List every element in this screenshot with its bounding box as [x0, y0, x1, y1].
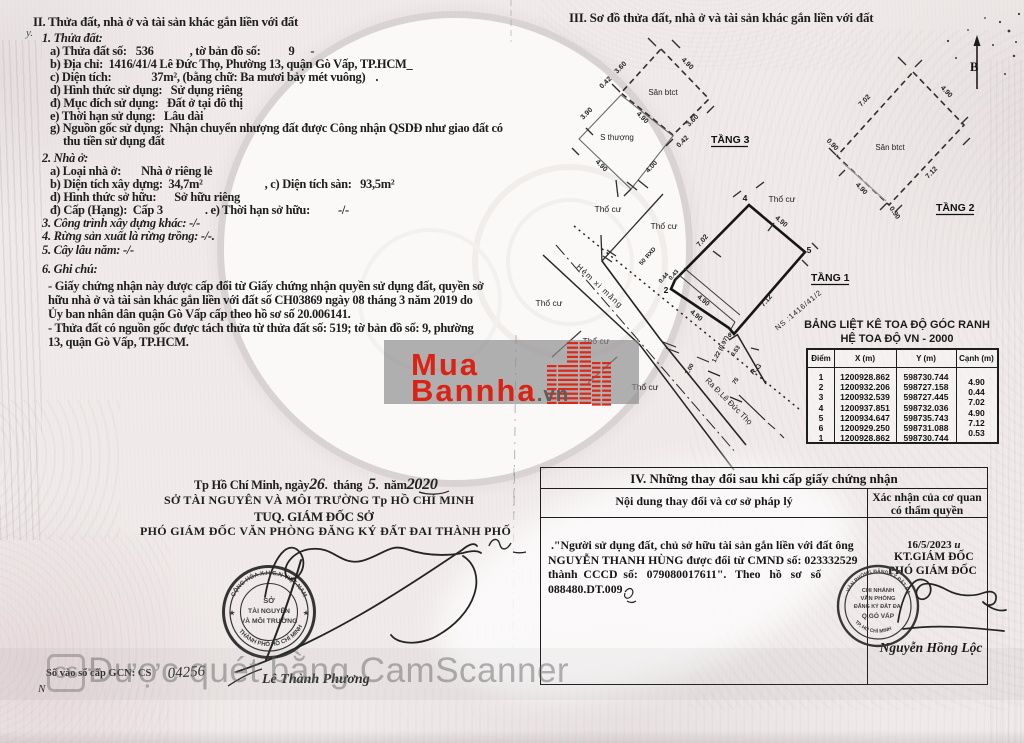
svg-text:★: ★	[229, 609, 236, 617]
svg-text:★: ★	[303, 609, 310, 617]
svg-text:CHI NHÁNH: CHI NHÁNH	[862, 587, 895, 594]
svg-text:VĂN PHÒNG ĐĂNG KÝ ĐẤT ĐAI: VĂN PHÒNG ĐĂNG KÝ ĐẤT ĐAI	[0, 0, 911, 595]
svg-text:TP. HỒ CHÍ MINH: TP. HỒ CHÍ MINH	[853, 620, 893, 635]
svg-text:ĐĂNG KÝ ĐẤT ĐAI: ĐĂNG KÝ ĐẤT ĐAI	[854, 603, 903, 610]
svg-text:VĂN PHÒNG: VĂN PHÒNG	[860, 594, 896, 602]
svg-text:VÀ MÔI TRƯỜNG: VÀ MÔI TRƯỜNG	[241, 616, 298, 625]
svg-text:Q.GÒ VẤP: Q.GÒ VẤP	[862, 610, 895, 620]
